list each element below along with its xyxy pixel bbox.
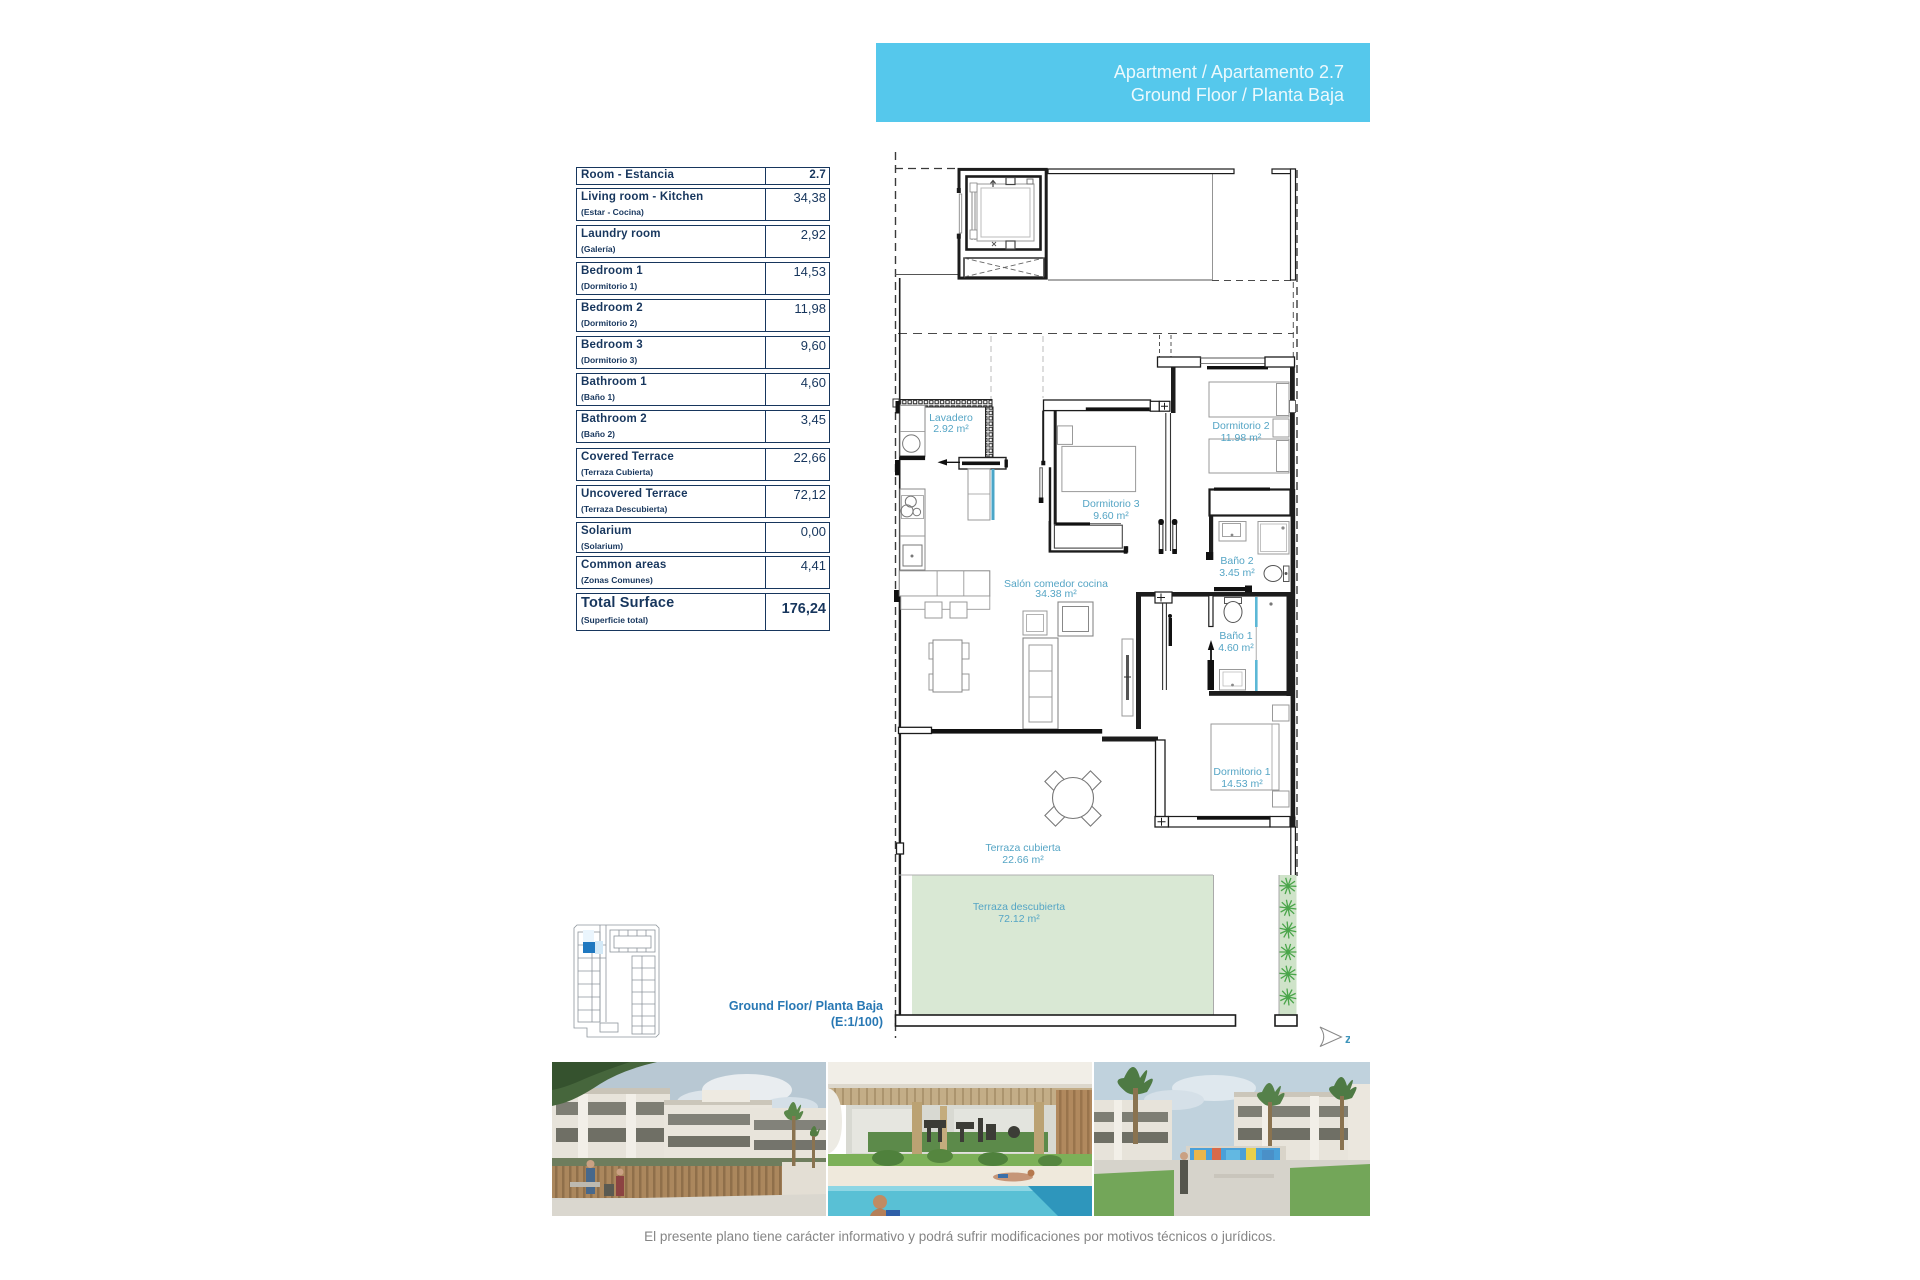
- svg-text:14.53 m²: 14.53 m²: [1221, 778, 1263, 790]
- svg-text:Dormitorio 1: Dormitorio 1: [1213, 766, 1270, 778]
- svg-text:3.45 m²: 3.45 m²: [1219, 567, 1255, 579]
- svg-text:22.66 m²: 22.66 m²: [1002, 854, 1044, 866]
- svg-text:11.98 m²: 11.98 m²: [1221, 432, 1262, 444]
- svg-text:2.92 m²: 2.92 m²: [933, 423, 969, 435]
- svg-text:z: z: [1345, 1031, 1350, 1046]
- svg-text:Dormitorio 3: Dormitorio 3: [1082, 498, 1139, 510]
- svg-text:72.12 m²: 72.12 m²: [998, 913, 1040, 925]
- svg-text:Baño 2: Baño 2: [1220, 555, 1253, 567]
- svg-text:Baño 1: Baño 1: [1219, 630, 1252, 642]
- svg-text:9.60 m²: 9.60 m²: [1093, 510, 1129, 522]
- svg-text:Terraza cubierta: Terraza cubierta: [985, 842, 1060, 854]
- svg-text:Terraza descubierta: Terraza descubierta: [973, 901, 1065, 913]
- svg-text:34.38 m²: 34.38 m²: [1035, 588, 1077, 600]
- svg-text:Dormitorio 2: Dormitorio 2: [1212, 420, 1269, 432]
- svg-text:4.60 m²: 4.60 m²: [1218, 642, 1254, 654]
